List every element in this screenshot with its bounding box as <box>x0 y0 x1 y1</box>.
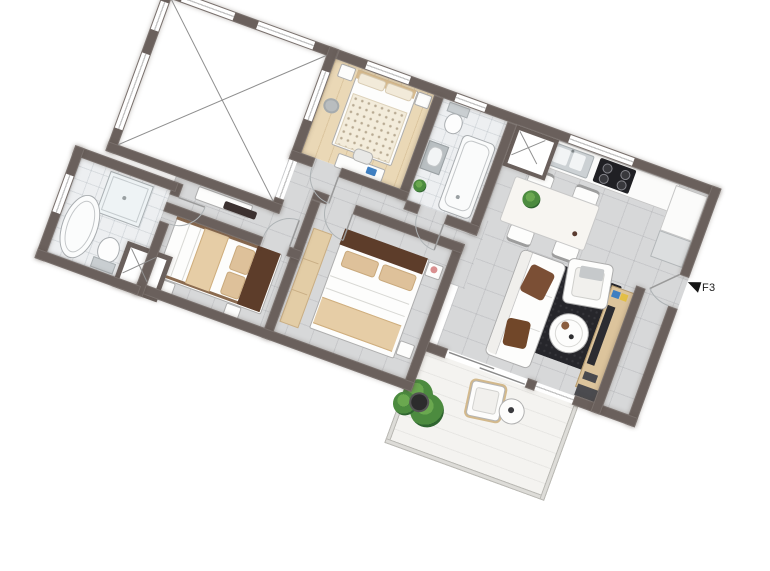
lounge-chair-cushion <box>471 387 499 415</box>
floor-plan <box>0 0 738 571</box>
floor-plan-page: { "marker": { "label": "F3" }, "colors":… <box>0 0 770 430</box>
unit-label: F3 <box>702 282 715 294</box>
